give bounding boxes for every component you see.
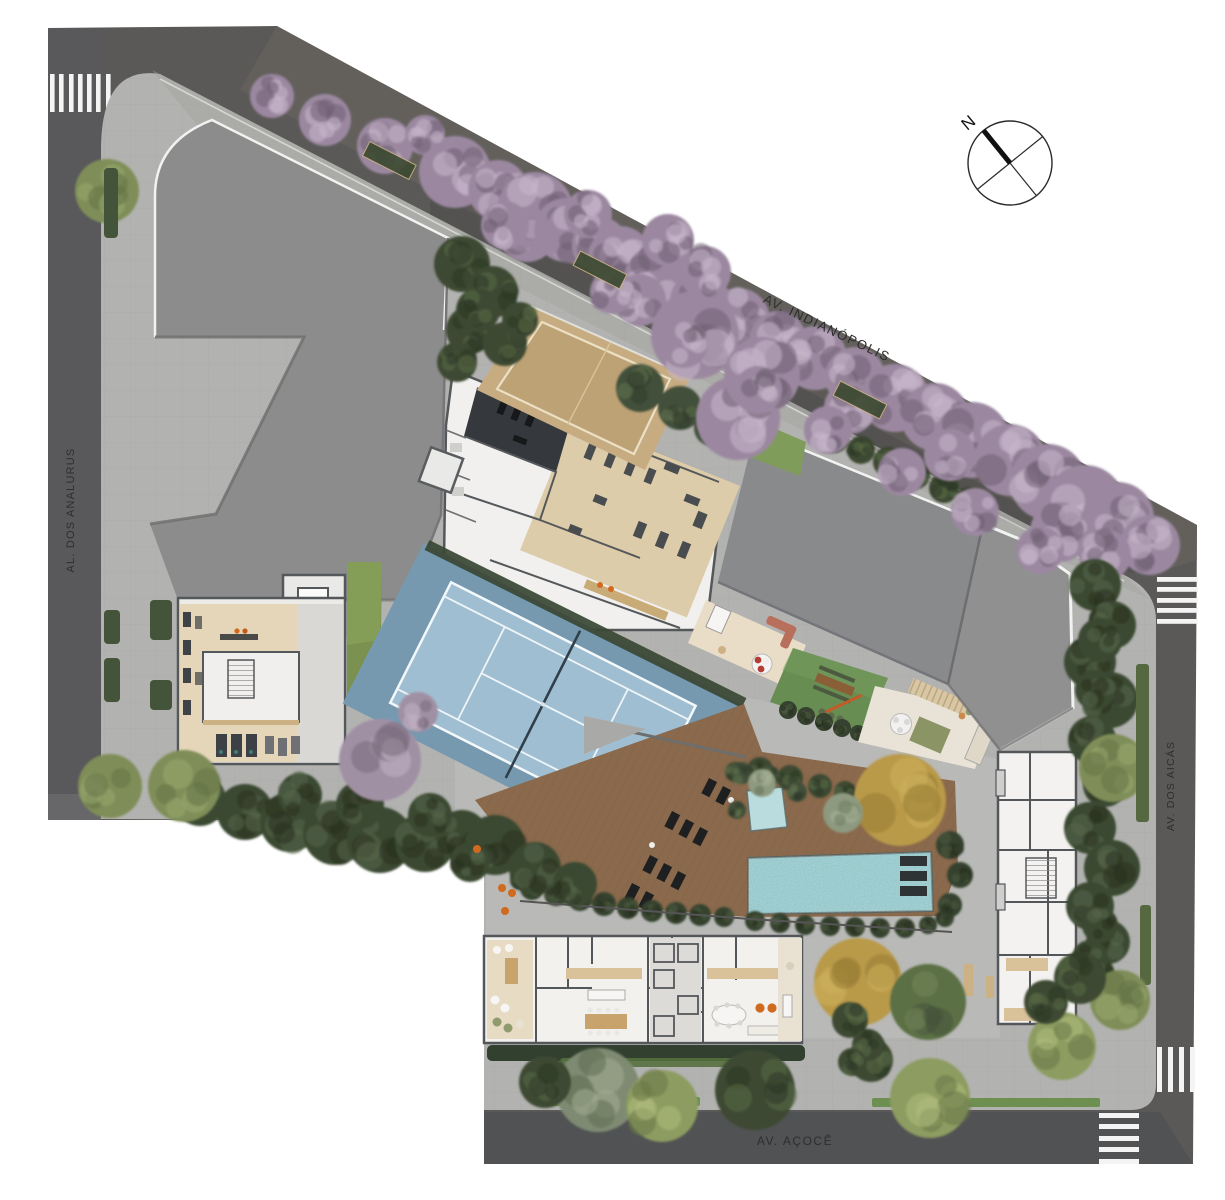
svg-text:AV. DOS AICÁS: AV. DOS AICÁS [1164, 741, 1177, 831]
svg-text:AL. DOS ANALURUS: AL. DOS ANALURUS [65, 448, 77, 573]
svg-text:AV. AÇOCÊ: AV. AÇOCÊ [757, 1133, 833, 1148]
